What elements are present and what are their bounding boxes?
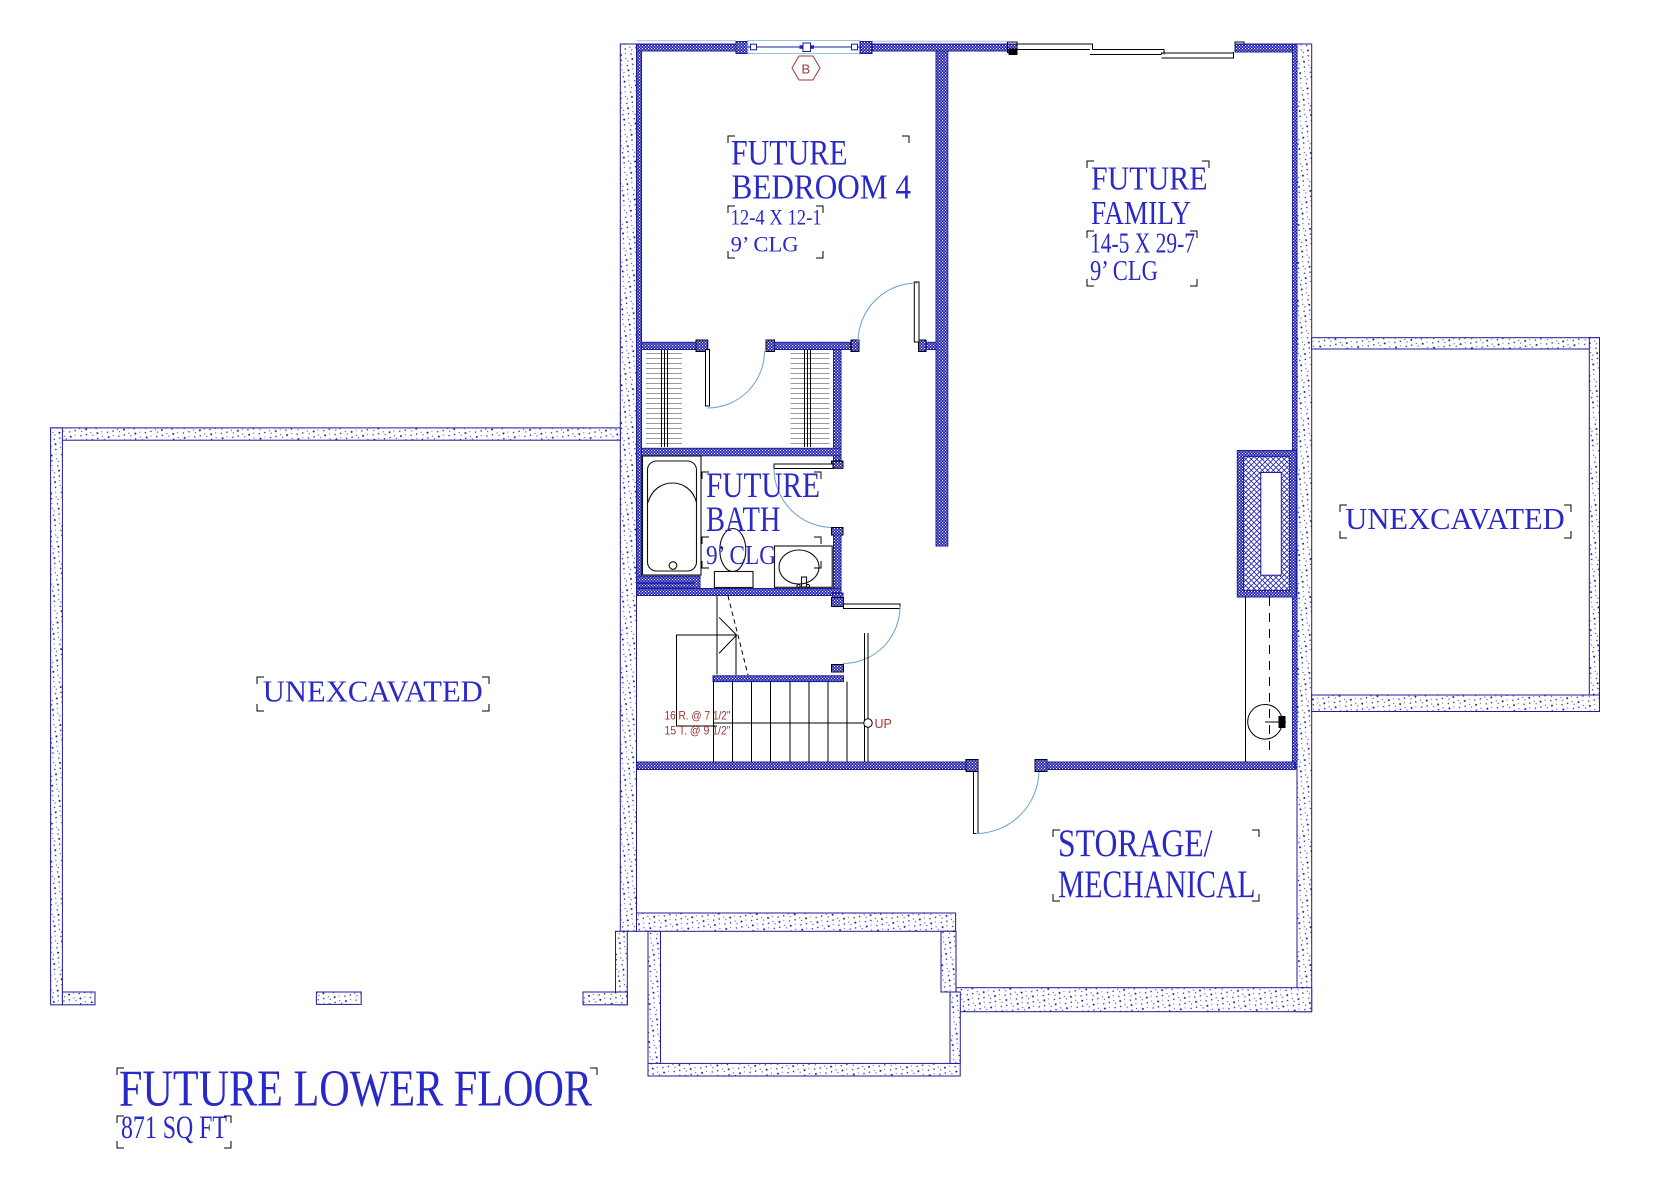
svg-text:9’ CLG: 9’ CLG — [731, 232, 799, 257]
svg-text:12-4 X 12-1: 12-4 X 12-1 — [731, 205, 822, 230]
svg-text:871 SQ FT: 871 SQ FT — [121, 1110, 227, 1146]
svg-text:MECHANICAL: MECHANICAL — [1058, 863, 1256, 906]
svg-text:9’ CLG: 9’ CLG — [706, 540, 776, 570]
svg-text:UNEXCAVATED: UNEXCAVATED — [1345, 501, 1564, 536]
svg-text:STORAGE/: STORAGE/ — [1058, 822, 1213, 865]
svg-text:BATH: BATH — [706, 499, 781, 539]
svg-text:UNEXCAVATED: UNEXCAVATED — [263, 674, 483, 709]
svg-text:FUTURE: FUTURE — [1091, 161, 1208, 198]
svg-text:UP: UP — [875, 717, 892, 731]
svg-text:9’ CLG: 9’ CLG — [1090, 256, 1158, 287]
svg-text:15 T. @ 9 1/2": 15 T. @ 9 1/2" — [665, 724, 731, 738]
svg-text:BEDROOM 4: BEDROOM 4 — [732, 168, 912, 207]
svg-text:B: B — [802, 62, 811, 77]
svg-text:16 R. @ 7 1/2": 16 R. @ 7 1/2" — [665, 709, 731, 723]
svg-text:FAMILY: FAMILY — [1091, 195, 1191, 232]
svg-text:14-5 X 29-7: 14-5 X 29-7 — [1090, 229, 1195, 260]
svg-text:FUTURE: FUTURE — [731, 133, 848, 173]
